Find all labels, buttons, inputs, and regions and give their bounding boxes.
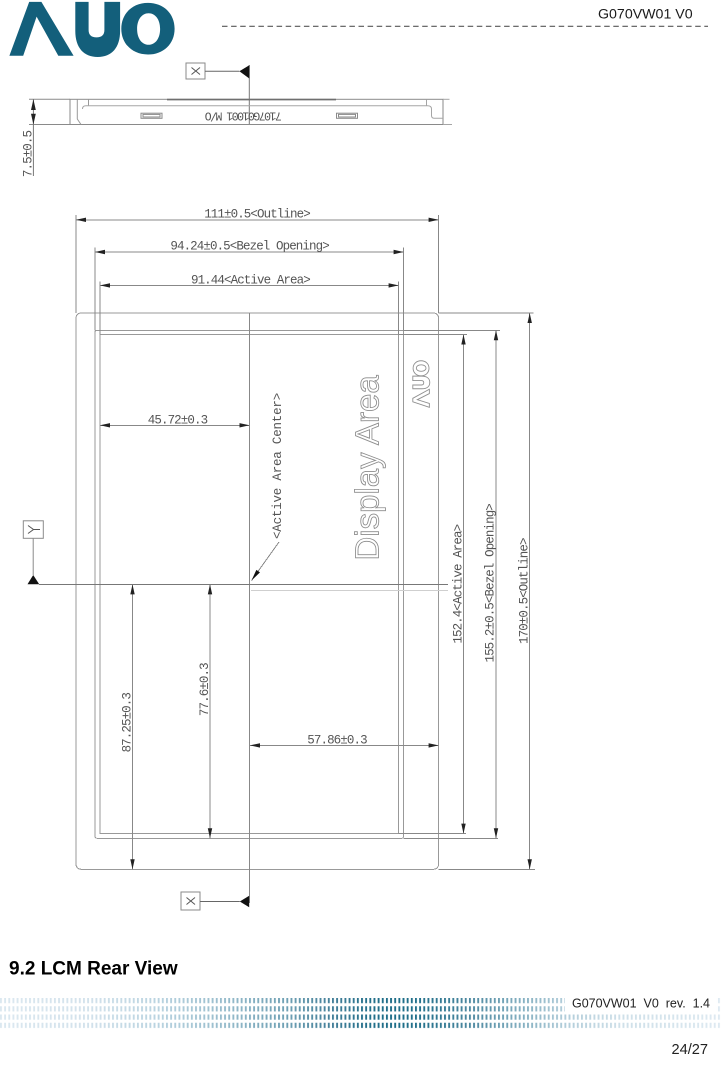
svg-text:111±0.5<Outline>: 111±0.5<Outline>: [204, 208, 310, 222]
svg-text:7.5±0.5: 7.5±0.5: [22, 131, 36, 178]
svg-text:77.6±0.3: 77.6±0.3: [198, 663, 212, 716]
svg-text:87.25±0.3: 87.25±0.3: [120, 693, 134, 753]
svg-text:<Active Area Center>: <Active Area Center>: [271, 393, 285, 539]
svg-text:57.86±0.3: 57.86±0.3: [307, 734, 367, 748]
svg-text:45.72±0.3: 45.72±0.3: [148, 414, 208, 428]
svg-text:G070VW01 V0: G070VW01 V0: [598, 7, 693, 23]
svg-text:170±0.5<Outline>: 170±0.5<Outline>: [518, 538, 532, 644]
svg-text:7107G01001 M/O: 7107G01001 M/O: [205, 109, 282, 122]
svg-text:G070VW01 V0 rev. 1.4: G070VW01 V0 rev. 1.4: [572, 997, 710, 1011]
svg-text:94.24±0.5<Bezel Opening>: 94.24±0.5<Bezel Opening>: [170, 240, 329, 254]
svg-text:Display Area: Display Area: [348, 375, 385, 561]
svg-text:91.44<Active Area>: 91.44<Active Area>: [191, 274, 310, 288]
svg-text:152.4<Active Area>: 152.4<Active Area>: [452, 524, 466, 643]
svg-text:24/27: 24/27: [671, 1042, 708, 1058]
svg-text:9.2 LCM Rear View: 9.2 LCM Rear View: [9, 958, 178, 979]
svg-text:155.2±0.5<Bezel Opening>: 155.2±0.5<Bezel Opening>: [484, 504, 498, 663]
